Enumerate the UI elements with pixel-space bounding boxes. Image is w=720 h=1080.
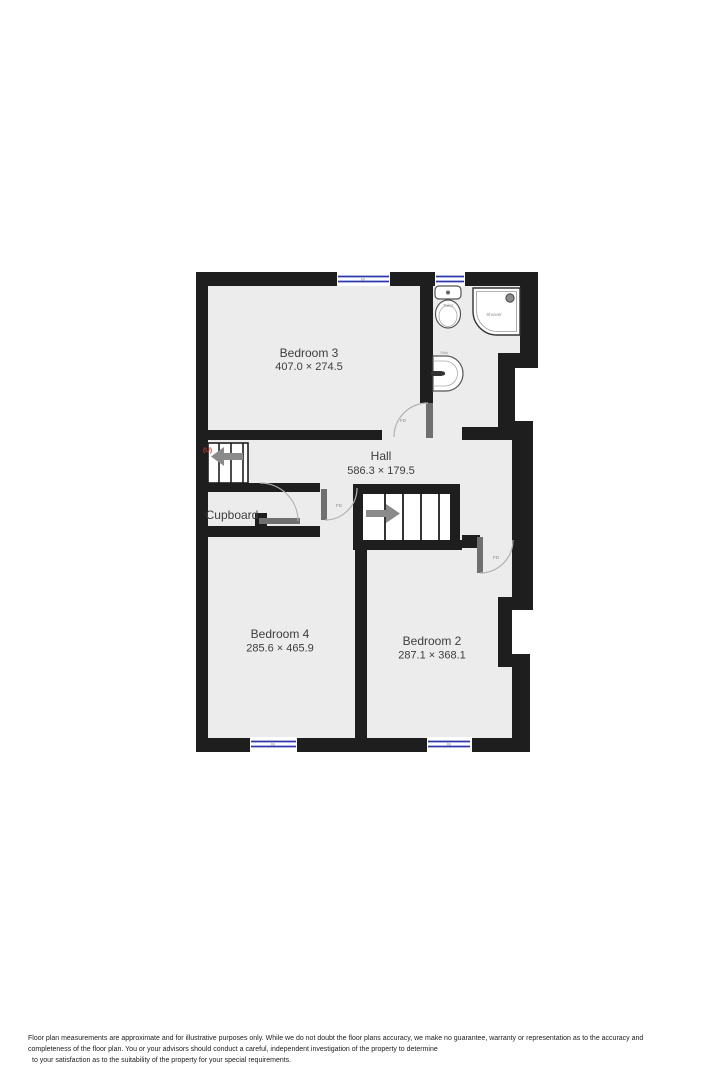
fire-door-label: FD (400, 418, 407, 423)
bedroom4-dims: 285.6 × 465.9 (246, 643, 314, 655)
cupboard-name: Cupboard (206, 508, 259, 522)
bedroom4-name: Bedroom 4 (251, 627, 310, 641)
fire-door-label: FD (493, 555, 500, 560)
shower: Shower (473, 288, 520, 335)
stairs-upper-left: (U) (203, 443, 248, 483)
room-label-bedroom4: Bedroom 4 285.6 × 465.9 (246, 627, 314, 655)
toilet: Toilet (435, 286, 461, 328)
stairs-main (363, 494, 450, 540)
bedroom2-name: Bedroom 2 (403, 634, 462, 648)
window-top-bathroom (435, 272, 465, 286)
stairs-up-marker: (U) (203, 447, 212, 454)
sink-label: Sink (440, 350, 448, 355)
window-tag: W (447, 742, 451, 747)
hall-dims: 586.3 × 179.5 (347, 465, 415, 477)
window-bottom-bedroom4: W (250, 737, 297, 754)
disclaimer-line-3: to your satisfaction as to the suitabili… (28, 1055, 700, 1066)
toilet-label: Toilet (443, 303, 454, 308)
disclaimer-text: Floor plan measurements are approximate … (28, 1033, 700, 1066)
bedroom2-dims: 287.1 × 368.1 (398, 650, 466, 662)
hall-name: Hall (371, 449, 392, 463)
window-tag: W (361, 277, 365, 282)
bedroom3-name: Bedroom 3 (280, 346, 339, 360)
window-tag: W (271, 742, 275, 747)
room-label-bedroom3: Bedroom 3 407.0 × 274.5 (275, 346, 343, 373)
fire-door-label: FD (336, 503, 343, 508)
disclaimer-line-2: completeness of the floor plan. You or y… (28, 1044, 700, 1055)
disclaimer-line-1: Floor plan measurements are approximate … (28, 1033, 700, 1044)
floor-plan: W W W (0, 0, 720, 1080)
floor-plan-page: W W W (0, 0, 720, 1080)
bedroom3-dims: 407.0 × 274.5 (275, 361, 343, 373)
room-label-cupboard: Cupboard (206, 508, 259, 522)
shower-label: Shower (486, 312, 502, 317)
room-label-bedroom2: Bedroom 2 287.1 × 368.1 (398, 634, 466, 662)
window-top-bedroom3: W (337, 272, 390, 286)
window-bottom-bedroom2: W (427, 737, 472, 753)
